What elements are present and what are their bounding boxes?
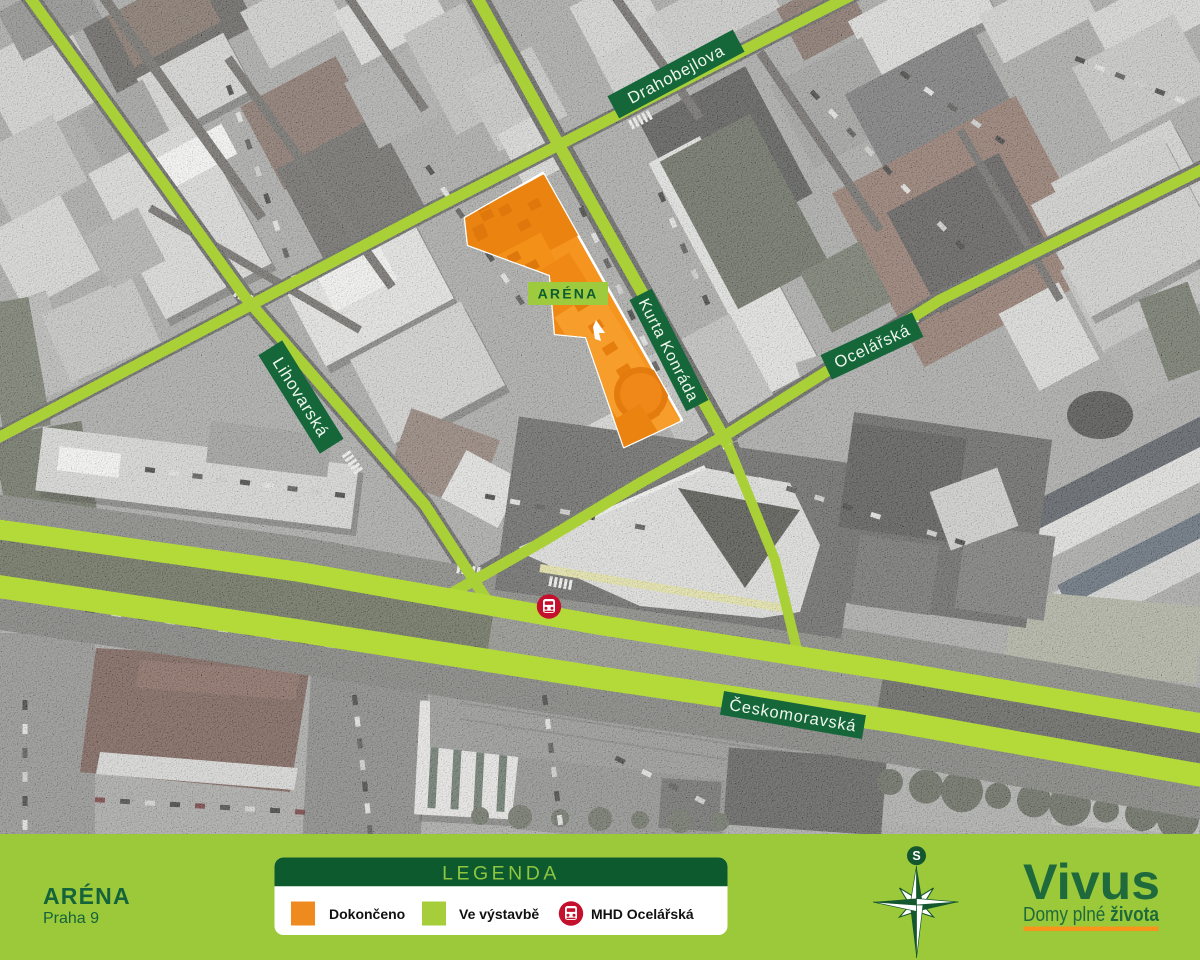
svg-text:ARÉNA: ARÉNA <box>43 882 131 909</box>
svg-text:Domy plné života: Domy plné života <box>1023 903 1159 926</box>
svg-text:LEGENDA: LEGENDA <box>442 863 560 885</box>
svg-text:S: S <box>912 849 920 863</box>
svg-text:Dokončeno: Dokončeno <box>329 906 405 922</box>
svg-text:Vivus: Vivus <box>1023 854 1160 910</box>
svg-text:MHD Ocelářská: MHD Ocelářská <box>591 906 694 922</box>
svg-text:Praha 9: Praha 9 <box>43 910 99 927</box>
svg-text:Ve výstavbě: Ve výstavbě <box>459 906 539 922</box>
svg-text:ARÉNA: ARÉNA <box>538 286 599 302</box>
